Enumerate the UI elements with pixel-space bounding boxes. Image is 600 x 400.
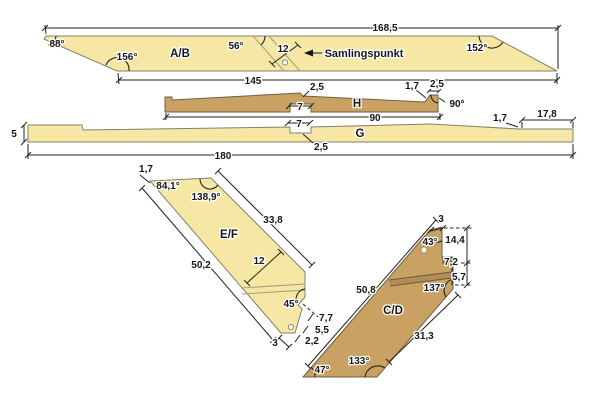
- dim-cd-height-total: 14,4: [445, 235, 465, 246]
- dim-cd-height-low: 5,7: [452, 272, 466, 283]
- angle-cd-top: 43°: [422, 237, 437, 248]
- part-h-label: H: [353, 98, 361, 110]
- angle-ab-top-right: 152°: [467, 43, 488, 54]
- dim-h-right-width: 2,5: [430, 79, 444, 90]
- dim-cd-height-mid: 7,2: [444, 257, 458, 268]
- dim-h-notch-width: 7: [297, 102, 303, 113]
- angle-cd-bottom-left: 47°: [314, 365, 329, 376]
- part-g-label: G: [356, 128, 365, 140]
- part-cd-label: C/D: [383, 305, 403, 317]
- dim-cd-top-cut: 3: [438, 214, 444, 225]
- dim-g-end-length: 17,8: [537, 109, 557, 120]
- dim-h-right-rise: 1,7: [405, 81, 419, 92]
- drill-hole-ab: [282, 60, 287, 65]
- cutting-diagram: 168,5 88° 156° A/B 56° 12 Samlingspunkt …: [0, 0, 600, 400]
- dim-ab-joint-width: 12: [277, 44, 289, 55]
- joint-note: Samlingspunkt: [325, 48, 404, 60]
- dim-ab-bottom-length: 145: [245, 76, 262, 87]
- dim-cd-edge-left: 50,8: [356, 285, 376, 296]
- dim-g-thickness: 5: [11, 129, 17, 140]
- dim-g-notch-width: 7: [296, 119, 302, 130]
- dim-ab-top-length: 168,5: [372, 23, 397, 34]
- angle-ab-joint: 56°: [228, 41, 243, 52]
- dim-ef-c: 2,2: [305, 336, 319, 347]
- dim-ef-bottom-width: 3: [272, 338, 278, 349]
- part-ef-shape: [150, 178, 305, 333]
- part-ef-label: E/F: [220, 229, 238, 241]
- dim-ef-a: 7,7: [319, 313, 333, 324]
- dim-ef-width: 12: [253, 256, 265, 267]
- dim-ef-edge-right: 33,8: [263, 215, 283, 226]
- part-ab-label: A/B: [170, 48, 190, 60]
- angle-ef-notch: 45°: [283, 299, 298, 310]
- angle-ef-top: 138,9°: [191, 192, 220, 203]
- dim-h-length: 90: [369, 113, 381, 124]
- part-cd-shape: [303, 227, 453, 377]
- dim-ef-tip-cut: 1,7: [139, 164, 153, 175]
- angle-ab-top-left: 88°: [49, 39, 64, 50]
- angle-h-right: 90°: [449, 99, 464, 110]
- angle-ab-bottom-left: 156°: [117, 52, 138, 63]
- angle-cd-step: 137°: [424, 283, 445, 294]
- dim-ef-b: 5,5: [315, 325, 329, 336]
- dim-g-notch-depth: 2,5: [314, 142, 328, 153]
- dim-g-step-depth: 1,7: [493, 113, 507, 124]
- angle-ef-tip: 84,1°: [156, 181, 179, 192]
- dim-g-length: 180: [215, 151, 232, 162]
- angle-cd-bottom-right: 133°: [349, 356, 370, 367]
- diagram-canvas: 168,5 88° 156° A/B 56° 12 Samlingspunkt …: [0, 0, 600, 400]
- dim-ef-edge-left: 50,2: [191, 260, 211, 271]
- dim-cd-edge-lower-right: 31,3: [414, 331, 434, 342]
- drill-hole-ef: [288, 324, 293, 329]
- dim-h-top-step: 2,5: [310, 82, 324, 93]
